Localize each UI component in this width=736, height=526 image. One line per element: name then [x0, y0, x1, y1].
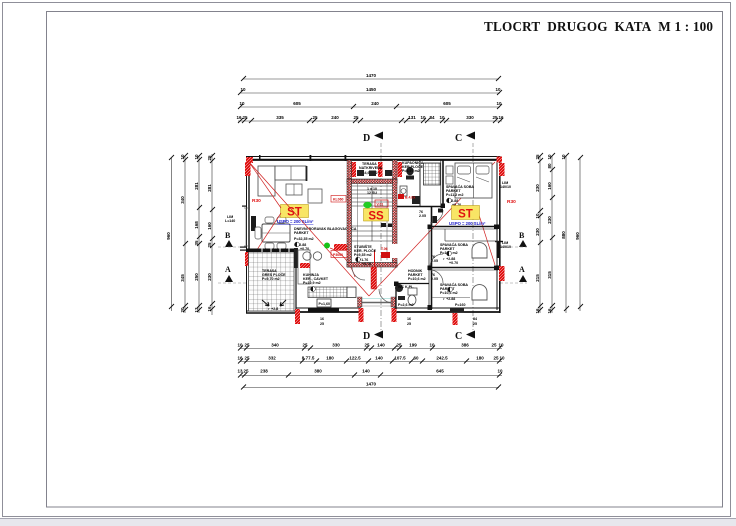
svg-text:107.5: 107.5	[394, 356, 406, 361]
svg-text:199: 199	[409, 343, 417, 348]
svg-text:B: B	[519, 231, 525, 240]
svg-text:386: 386	[461, 343, 469, 348]
svg-text:WC K.PL.: WC K.PL.	[398, 285, 414, 289]
svg-text:P=11,2 m2: P=11,2 m2	[446, 193, 463, 197]
svg-text:PARKET: PARKET	[294, 231, 309, 235]
svg-text:330: 330	[466, 115, 474, 120]
svg-text:P=9,35 m2: P=9,35 m2	[354, 253, 372, 257]
svg-text:10: 10	[439, 115, 445, 120]
svg-text:P=160: P=160	[455, 303, 466, 307]
svg-text:25: 25	[302, 343, 308, 348]
svg-text:240: 240	[331, 115, 339, 120]
svg-text:340: 340	[180, 196, 185, 204]
svg-text:215: 215	[535, 274, 540, 282]
svg-text:330: 330	[332, 343, 340, 348]
svg-text:140: 140	[362, 369, 370, 374]
svg-text:P=10,6 m2: P=10,6 m2	[408, 277, 426, 281]
svg-text:16: 16	[535, 308, 540, 314]
svg-text:10: 10	[429, 343, 435, 348]
svg-text:16: 16	[207, 306, 212, 312]
svg-text:13: 13	[237, 369, 243, 374]
svg-text:ST: ST	[458, 209, 473, 221]
svg-text:USPO = 200 SL/m²: USPO = 200 SL/m²	[449, 221, 486, 226]
svg-text:◐ +2.88: ◐ +2.88	[443, 297, 455, 301]
svg-text:D: D	[363, 133, 370, 144]
svg-text:16: 16	[320, 317, 324, 321]
svg-text:335: 335	[276, 115, 284, 120]
svg-text:230: 230	[207, 273, 212, 281]
svg-text:10: 10	[194, 154, 199, 160]
svg-text:230: 230	[535, 184, 540, 192]
svg-text:P=1,60: P=1,60	[319, 302, 331, 306]
svg-text:180: 180	[476, 356, 484, 361]
svg-text:180: 180	[326, 356, 334, 361]
svg-text:10: 10	[495, 87, 501, 92]
svg-text:25: 25	[353, 115, 359, 120]
svg-text:16: 16	[237, 356, 243, 361]
svg-text:25: 25	[535, 154, 540, 160]
svg-text:140: 140	[377, 343, 385, 348]
svg-text:P=10,9 m2: P=10,9 m2	[303, 281, 321, 285]
svg-text:960: 960	[166, 232, 171, 240]
svg-text:84: 84	[473, 317, 477, 321]
svg-text:D: D	[363, 331, 370, 342]
svg-text:25: 25	[244, 356, 250, 361]
svg-text:122.5: 122.5	[349, 356, 361, 361]
svg-text:880: 880	[561, 231, 566, 239]
svg-text:16: 16	[498, 115, 504, 120]
svg-text:10: 10	[547, 154, 552, 160]
svg-text:A: A	[225, 265, 231, 274]
svg-text:◐ +2.8: ◐ +2.8	[268, 307, 278, 311]
svg-text:P=2,6 m2: P=2,6 m2	[398, 303, 414, 307]
svg-text:380: 380	[314, 369, 322, 374]
svg-text:230: 230	[547, 216, 552, 224]
svg-text:230: 230	[535, 228, 540, 236]
svg-text:605: 605	[443, 101, 451, 106]
svg-text:13: 13	[194, 307, 199, 313]
svg-text:10: 10	[237, 343, 243, 348]
svg-text:TLOCRT DRUGOG KATA M 1 : 100: TLOCRT DRUGOG KATA M 1 : 100	[484, 19, 713, 34]
svg-text:140/10: 140/10	[500, 185, 511, 189]
svg-text:160: 160	[207, 222, 212, 230]
svg-text:NATKRIVENA: NATKRIVENA	[359, 166, 383, 170]
svg-text:131: 131	[408, 115, 416, 120]
svg-text:238: 238	[260, 369, 268, 374]
svg-text:20: 20	[180, 307, 185, 313]
svg-text:25: 25	[493, 356, 499, 361]
svg-text:332: 332	[268, 356, 276, 361]
svg-text:P=9,70 m2: P=9,70 m2	[262, 277, 280, 281]
svg-text:960: 960	[575, 232, 580, 240]
svg-text:242.5: 242.5	[436, 356, 448, 361]
svg-text:16: 16	[547, 308, 552, 314]
svg-text:10: 10	[420, 115, 426, 120]
svg-text:345: 345	[180, 274, 185, 282]
svg-text:2.05: 2.05	[431, 259, 438, 263]
svg-text:25: 25	[320, 322, 324, 326]
svg-text:R30: R30	[507, 199, 516, 205]
svg-text:25: 25	[207, 242, 212, 248]
svg-text:+0.70: +0.70	[300, 247, 309, 251]
svg-text:+0.70: +0.70	[449, 261, 458, 265]
svg-text:25: 25	[407, 322, 411, 326]
svg-text:USPO = 200 SL/m²: USPO = 200 SL/m²	[277, 219, 314, 224]
svg-text:+3.78: +3.78	[362, 262, 371, 266]
svg-text:10: 10	[561, 154, 566, 160]
svg-text:10: 10	[497, 369, 503, 374]
svg-text:25: 25	[312, 115, 318, 120]
svg-text:L=140: L=140	[225, 219, 235, 223]
svg-text:2.05: 2.05	[419, 214, 426, 218]
svg-text:1470: 1470	[366, 382, 377, 387]
svg-text:P3060: P3060	[333, 253, 343, 257]
svg-text:281: 281	[194, 182, 199, 190]
svg-text:B.4,0x: B.4,0x	[405, 196, 415, 200]
svg-text:80: 80	[547, 163, 552, 169]
svg-text:16: 16	[236, 115, 242, 120]
svg-text:25: 25	[492, 115, 498, 120]
svg-text:340: 340	[271, 343, 279, 348]
svg-text:315: 315	[547, 271, 552, 279]
svg-text:10: 10	[499, 356, 505, 361]
svg-text:A: A	[519, 265, 525, 274]
svg-text:240: 240	[371, 101, 379, 106]
svg-text:77.5: 77.5	[306, 356, 315, 361]
svg-text:140: 140	[375, 356, 383, 361]
svg-text:10: 10	[240, 87, 246, 92]
svg-text:60: 60	[413, 356, 419, 361]
svg-text:B: B	[225, 231, 231, 240]
svg-text:25: 25	[473, 322, 477, 326]
svg-text:P=4,97 m2: P=4,97 m2	[402, 169, 420, 173]
svg-text:12 SU: 12 SU	[367, 191, 377, 195]
svg-text:25: 25	[491, 343, 497, 348]
svg-text:25: 25	[244, 343, 250, 348]
svg-text:T.06: T.06	[381, 247, 388, 251]
svg-text:25: 25	[243, 369, 249, 374]
svg-text:C: C	[455, 133, 462, 144]
svg-text:KL060: KL060	[333, 198, 344, 202]
svg-text:605: 605	[293, 101, 301, 106]
svg-text:16: 16	[407, 317, 411, 321]
svg-text:V.01: V.01	[377, 203, 384, 207]
svg-text:160: 160	[547, 182, 552, 190]
svg-text:25: 25	[207, 155, 212, 161]
svg-text:1450: 1450	[366, 87, 377, 92]
svg-text:10: 10	[239, 101, 245, 106]
svg-text:R30: R30	[252, 198, 261, 204]
svg-text:250: 250	[194, 273, 199, 281]
svg-text:281: 281	[207, 184, 212, 192]
svg-text:1470: 1470	[366, 73, 377, 78]
svg-text:10: 10	[535, 213, 540, 219]
svg-text:25: 25	[242, 115, 248, 120]
svg-text:25: 25	[396, 343, 402, 348]
svg-text:C: C	[455, 331, 462, 342]
svg-text:84: 84	[429, 115, 435, 120]
svg-text:P=32,35 m2: P=32,35 m2	[294, 237, 314, 241]
svg-text:168: 168	[194, 221, 199, 229]
svg-text:25: 25	[364, 343, 370, 348]
svg-text:140/10: 140/10	[500, 245, 511, 249]
svg-text:SS: SS	[368, 211, 384, 223]
svg-text:10: 10	[498, 343, 504, 348]
svg-text:2.05: 2.05	[431, 277, 438, 281]
svg-text:645: 645	[436, 369, 444, 374]
svg-text:10: 10	[496, 101, 502, 106]
svg-text:10: 10	[180, 154, 185, 160]
svg-text:35: 35	[194, 240, 199, 246]
